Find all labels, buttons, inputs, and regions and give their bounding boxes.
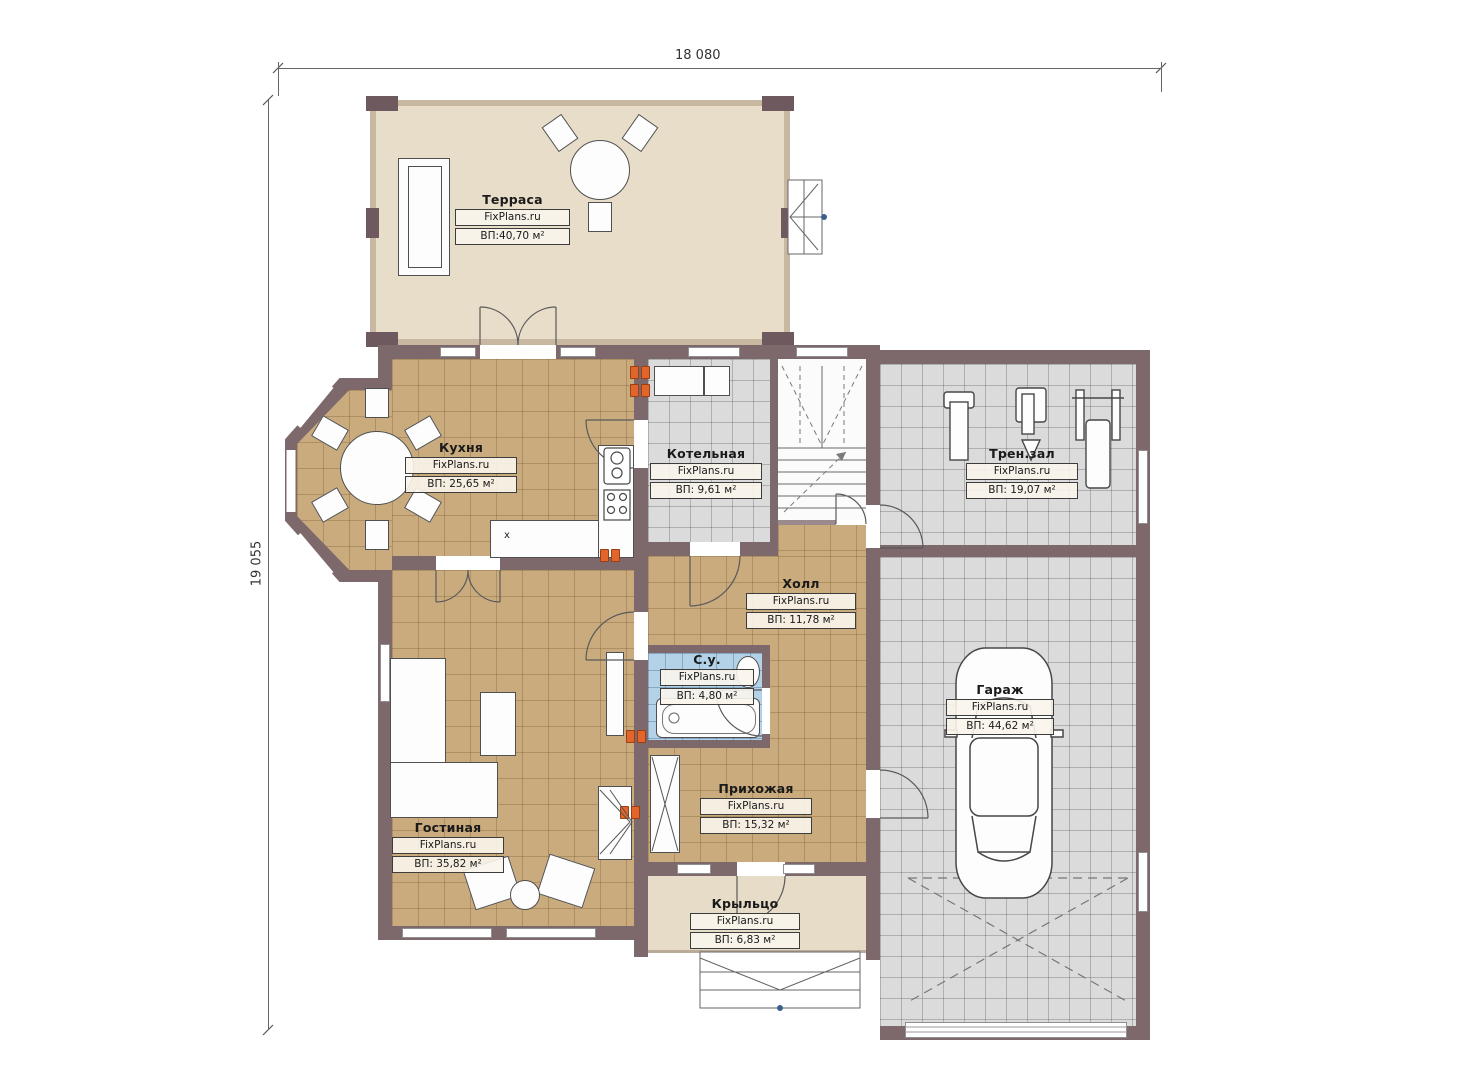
side-table <box>510 880 540 910</box>
kitchen-door-opening <box>634 420 648 468</box>
window <box>688 347 740 357</box>
kitchen-table <box>340 431 414 505</box>
room-name: Кухня <box>405 440 517 455</box>
dimension-ext-top-left <box>278 62 279 96</box>
porch-door-opening <box>737 862 785 876</box>
coffee-table <box>480 692 516 756</box>
dimension-height-label: 19 055 <box>249 541 264 587</box>
kitchen-chair <box>365 520 389 550</box>
room-brand: FixPlans.ru <box>690 913 800 930</box>
dimension-width-label: 18 080 <box>675 48 721 63</box>
room-label-terrace: Терраса FixPlans.ru ВП:40,70 м² <box>455 192 570 245</box>
room-name: Трен.зал <box>966 446 1078 461</box>
window <box>440 347 476 357</box>
room-name: Котельная <box>650 446 762 461</box>
window <box>1138 852 1148 912</box>
window <box>677 864 711 874</box>
room-label-garage: Гараж FixPlans.ru ВП: 44,62 м² <box>946 682 1054 735</box>
radiator <box>600 549 620 562</box>
wall-gym-garage <box>880 545 1150 557</box>
room-label-boiler: Котельная FixPlans.ru ВП: 9,61 м² <box>650 446 762 499</box>
room-area: ВП: 6,83 м² <box>690 932 800 949</box>
room-brand: FixPlans.ru <box>966 463 1078 480</box>
wall-porch-left <box>634 862 648 957</box>
boiler-cabinet <box>704 366 730 396</box>
window <box>783 864 815 874</box>
room-brand: FixPlans.ru <box>746 593 856 610</box>
garage-side-door-opening <box>866 770 880 818</box>
terrace-chair <box>588 202 612 232</box>
sofa-chaise <box>390 762 498 818</box>
room-area: ВП: 44,62 м² <box>946 718 1054 735</box>
room-name: Гараж <box>946 682 1054 697</box>
room-area: ВП: 35,82 м² <box>392 856 504 873</box>
room-brand: FixPlans.ru <box>455 209 570 226</box>
room-label-living: Гостиная FixPlans.ru ВП: 35,82 м² <box>392 820 504 873</box>
room-label-bathroom: С.у. FixPlans.ru ВП: 4,80 м² <box>660 652 754 705</box>
radiator <box>630 366 650 379</box>
room-name: С.у. <box>660 652 754 667</box>
room-label-porch: Крыльцо FixPlans.ru ВП: 6,83 м² <box>690 896 800 949</box>
wall-left-upper <box>378 345 392 390</box>
room-name: Прихожая <box>700 781 812 796</box>
room-brand: FixPlans.ru <box>700 798 812 815</box>
radiator <box>626 730 646 743</box>
bathtub-inner <box>662 704 756 734</box>
window <box>506 928 596 938</box>
window <box>380 644 390 702</box>
counter-mark: x <box>504 530 510 541</box>
room-name: Терраса <box>455 192 570 207</box>
radiator <box>630 384 650 397</box>
room-brand: FixPlans.ru <box>946 699 1054 716</box>
room-area: ВП: 9,61 м² <box>650 482 762 499</box>
terrace-column <box>781 208 794 238</box>
room-area: ВП: 25,65 м² <box>405 476 517 493</box>
room-area: ВП: 11,78 м² <box>746 612 856 629</box>
wardrobe <box>650 755 680 853</box>
boiler-door-opening <box>690 542 740 556</box>
terrace-door-opening <box>480 345 556 359</box>
gym-door-opening <box>866 505 880 548</box>
stairs-door-opening <box>836 520 866 525</box>
stairs-floor <box>778 359 866 524</box>
room-brand: FixPlans.ru <box>405 457 517 474</box>
bathroom-door-opening <box>762 688 770 734</box>
fireplace <box>598 786 632 860</box>
garage-door <box>905 1022 1127 1038</box>
room-area: ВП: 4,80 м² <box>660 688 754 705</box>
terrace-table <box>570 140 630 200</box>
hall-floor-upper <box>778 524 866 556</box>
terrace-bench-seat <box>408 166 442 268</box>
wall-bathroom-bottom <box>648 740 770 748</box>
dimension-ext-top-right <box>1161 62 1162 92</box>
terrace-column <box>762 96 794 111</box>
room-label-kitchen: Кухня FixPlans.ru ВП: 25,65 м² <box>405 440 517 493</box>
terrace-column <box>366 96 398 111</box>
garage-floor <box>880 557 1136 1026</box>
terrace-column <box>366 208 379 238</box>
boiler-unit <box>654 366 704 396</box>
room-name: Крыльцо <box>690 896 800 911</box>
kitchen-counter-vertical <box>598 445 634 558</box>
window <box>1138 450 1148 524</box>
wall-top-gym <box>880 350 1150 364</box>
room-label-hall: Холл FixPlans.ru ВП: 11,78 м² <box>746 576 856 629</box>
room-area: ВП:40,70 м² <box>455 228 570 245</box>
room-brand: FixPlans.ru <box>650 463 762 480</box>
floor-plan: 18 080 19 055 <box>0 0 1474 1080</box>
window <box>796 347 848 357</box>
radiator <box>620 806 640 819</box>
room-name: Холл <box>746 576 856 591</box>
wall-boiler-stairs <box>770 359 778 556</box>
window <box>402 928 492 938</box>
room-area: ВП: 19,07 м² <box>966 482 1078 499</box>
porch-edge <box>648 950 866 953</box>
wall-kitchen-living-right <box>500 556 648 570</box>
kitchen-chair <box>365 388 389 418</box>
room-area: ВП: 15,32 м² <box>700 817 812 834</box>
room-name: Гостиная <box>392 820 504 835</box>
tv-unit <box>606 652 624 736</box>
room-brand: FixPlans.ru <box>392 837 504 854</box>
room-brand: FixPlans.ru <box>660 669 754 686</box>
dimension-line-left <box>268 100 269 1030</box>
kitchen-living-door-opening <box>436 556 500 570</box>
window <box>560 347 596 357</box>
room-label-hallway: Прихожая FixPlans.ru ВП: 15,32 м² <box>700 781 812 834</box>
living-door-opening <box>634 612 648 660</box>
room-label-gym: Трен.зал FixPlans.ru ВП: 19,07 м² <box>966 446 1078 499</box>
dimension-line-top <box>278 68 1162 69</box>
